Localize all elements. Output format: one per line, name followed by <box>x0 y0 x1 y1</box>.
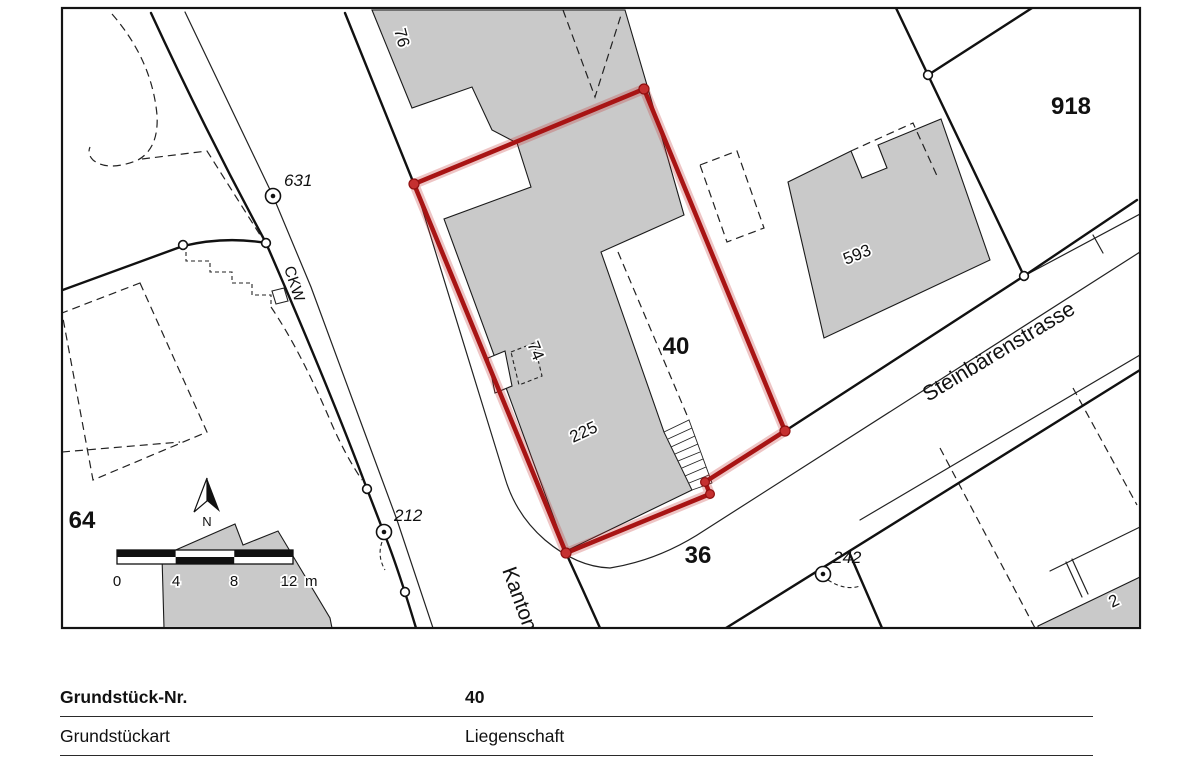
parcel-64-label: 64 <box>69 507 96 534</box>
parcel-918-label: 918 <box>1051 93 1091 120</box>
table-row-label: Grundstück-Nr. <box>60 687 187 708</box>
table-row: Grundstück-Nr. 40 <box>60 678 1093 717</box>
parcel-info-table: Grundstück-Nr. 40 Grundstückart Liegensc… <box>60 678 1093 756</box>
north-arrow-label: N <box>202 514 211 529</box>
point-212-label: 212 <box>393 506 423 525</box>
scale-12: 12 <box>281 573 298 590</box>
point-631-label: 631 <box>284 171 312 190</box>
parcel-36-label: 36 <box>685 542 712 569</box>
scale-4: 4 <box>172 573 180 590</box>
table-row-label: Grundstückart <box>60 726 170 747</box>
point-242-label: 242 <box>832 548 862 567</box>
scale-0: 0 <box>113 573 121 590</box>
cadastral-map: 64 918 40 36 631 212 242 76 74 225 593 2… <box>0 0 1200 760</box>
scale-8: 8 <box>230 573 238 590</box>
scale-unit: m <box>305 573 318 590</box>
table-row-value: Liegenschaft <box>465 726 564 747</box>
cadastral-map-page: 64 918 40 36 631 212 242 76 74 225 593 2… <box>0 0 1200 760</box>
parcel-40-label: 40 <box>663 333 690 360</box>
table-row: Grundstückart Liegenschaft <box>60 717 1093 756</box>
table-row-value: 40 <box>465 687 484 708</box>
